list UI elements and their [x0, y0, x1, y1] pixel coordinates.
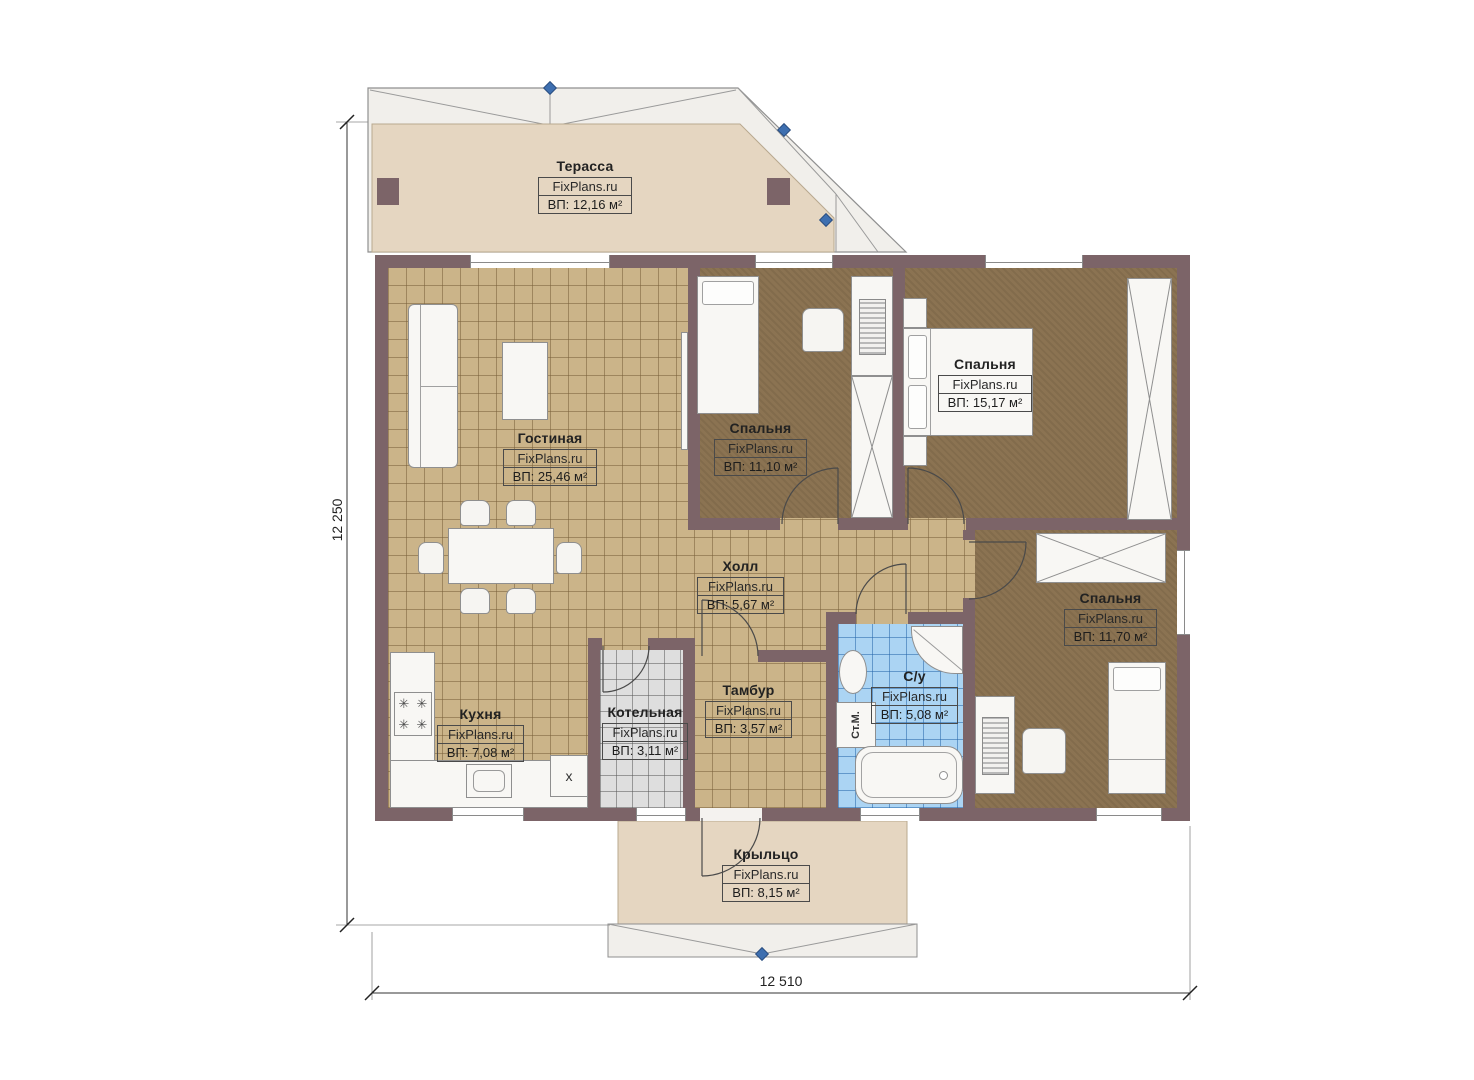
room-label-hall: Холл FixPlans.ru ВП: 5,67 м² — [668, 558, 813, 614]
watermark: FixPlans.ru — [698, 578, 783, 596]
room-label-bedroom-center: Спальня FixPlans.ru ВП: 11,10 м² — [688, 420, 833, 476]
room-name: Спальня — [910, 356, 1060, 372]
room-label-bathroom: С/у FixPlans.ru ВП: 5,08 м² — [852, 668, 977, 724]
room-area: ВП: 11,70 м² — [1065, 628, 1157, 645]
room-name: Тамбур — [686, 682, 811, 698]
room-name: Спальня — [1038, 590, 1183, 606]
watermark: FixPlans.ru — [539, 178, 632, 196]
room-area: ВП: 25,46 м² — [504, 468, 597, 485]
door-arc — [908, 468, 964, 524]
room-area: ВП: 15,17 м² — [939, 394, 1032, 411]
dimension-height: 12 250 — [329, 485, 345, 555]
door-arc — [856, 564, 906, 614]
room-area: ВП: 5,08 м² — [872, 706, 957, 723]
room-area: ВП: 11,10 м² — [715, 458, 807, 475]
watermark: FixPlans.ru — [438, 726, 523, 744]
room-label-terrace: Терасса FixPlans.ru ВП: 12,16 м² — [500, 158, 670, 214]
room-label-bedroom-right: Спальня FixPlans.ru ВП: 11,70 м² — [1038, 590, 1183, 646]
door-arc — [603, 646, 649, 692]
watermark: FixPlans.ru — [723, 866, 808, 884]
room-area: ВП: 3,11 м² — [603, 742, 687, 759]
watermark: FixPlans.ru — [706, 702, 791, 720]
room-area: ВП: 5,67 м² — [698, 596, 783, 613]
room-area: ВП: 12,16 м² — [539, 196, 632, 213]
watermark: FixPlans.ru — [1065, 610, 1157, 628]
room-name: Крыльцо — [692, 846, 840, 862]
door-arc — [969, 542, 1026, 599]
room-name: С/у — [852, 668, 977, 684]
dimension-width: 12 510 — [731, 973, 831, 989]
room-name: Холл — [668, 558, 813, 574]
watermark: FixPlans.ru — [939, 376, 1032, 394]
room-name: Терасса — [500, 158, 670, 174]
room-area: ВП: 7,08 м² — [438, 744, 523, 761]
room-area: ВП: 8,15 м² — [723, 884, 808, 901]
room-label-kitchen: Кухня FixPlans.ru ВП: 7,08 м² — [408, 706, 553, 762]
watermark: FixPlans.ru — [872, 688, 957, 706]
room-area: ВП: 3,57 м² — [706, 720, 791, 737]
watermark: FixPlans.ru — [603, 724, 687, 742]
watermark: FixPlans.ru — [715, 440, 807, 458]
room-label-bedroom-top-right: Спальня FixPlans.ru ВП: 15,17 м² — [910, 356, 1060, 412]
room-name: Кухня — [408, 706, 553, 722]
room-label-porch: Крыльцо FixPlans.ru ВП: 8,15 м² — [692, 846, 840, 902]
door-arcs-layer — [0, 0, 1474, 1080]
watermark: FixPlans.ru — [504, 450, 597, 468]
door-arc — [782, 468, 838, 524]
room-name: Гостиная — [465, 430, 635, 446]
room-label-vestibule: Тамбур FixPlans.ru ВП: 3,57 м² — [686, 682, 811, 738]
room-name: Спальня — [688, 420, 833, 436]
room-label-living: Гостиная FixPlans.ru ВП: 25,46 м² — [465, 430, 635, 486]
floor-plan: ✳✳✳✳ x Ст.М. — [0, 0, 1474, 1080]
